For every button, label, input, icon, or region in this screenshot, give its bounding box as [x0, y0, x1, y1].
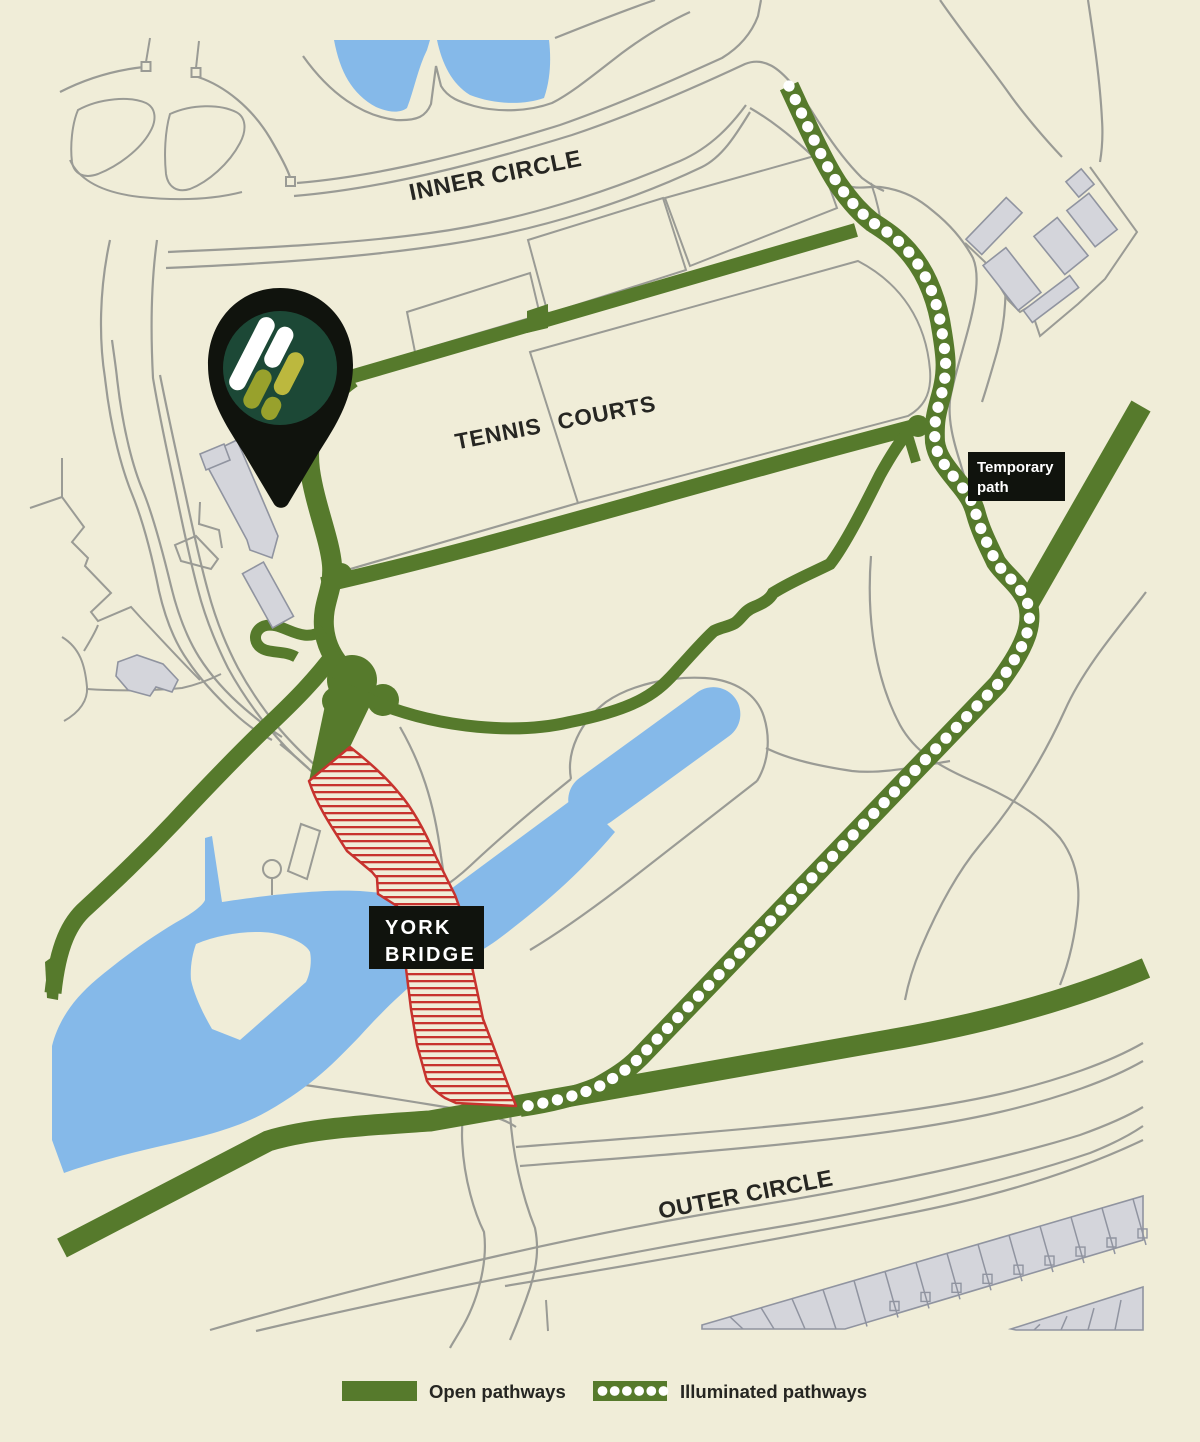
- svg-text:Illuminated pathways: Illuminated pathways: [680, 1381, 867, 1402]
- svg-text:path: path: [977, 479, 1009, 496]
- svg-text:YORK: YORK: [385, 917, 452, 939]
- svg-text:Open pathways: Open pathways: [429, 1381, 566, 1402]
- svg-text:Temporary: Temporary: [977, 459, 1054, 476]
- svg-text:BRIDGE: BRIDGE: [385, 944, 476, 966]
